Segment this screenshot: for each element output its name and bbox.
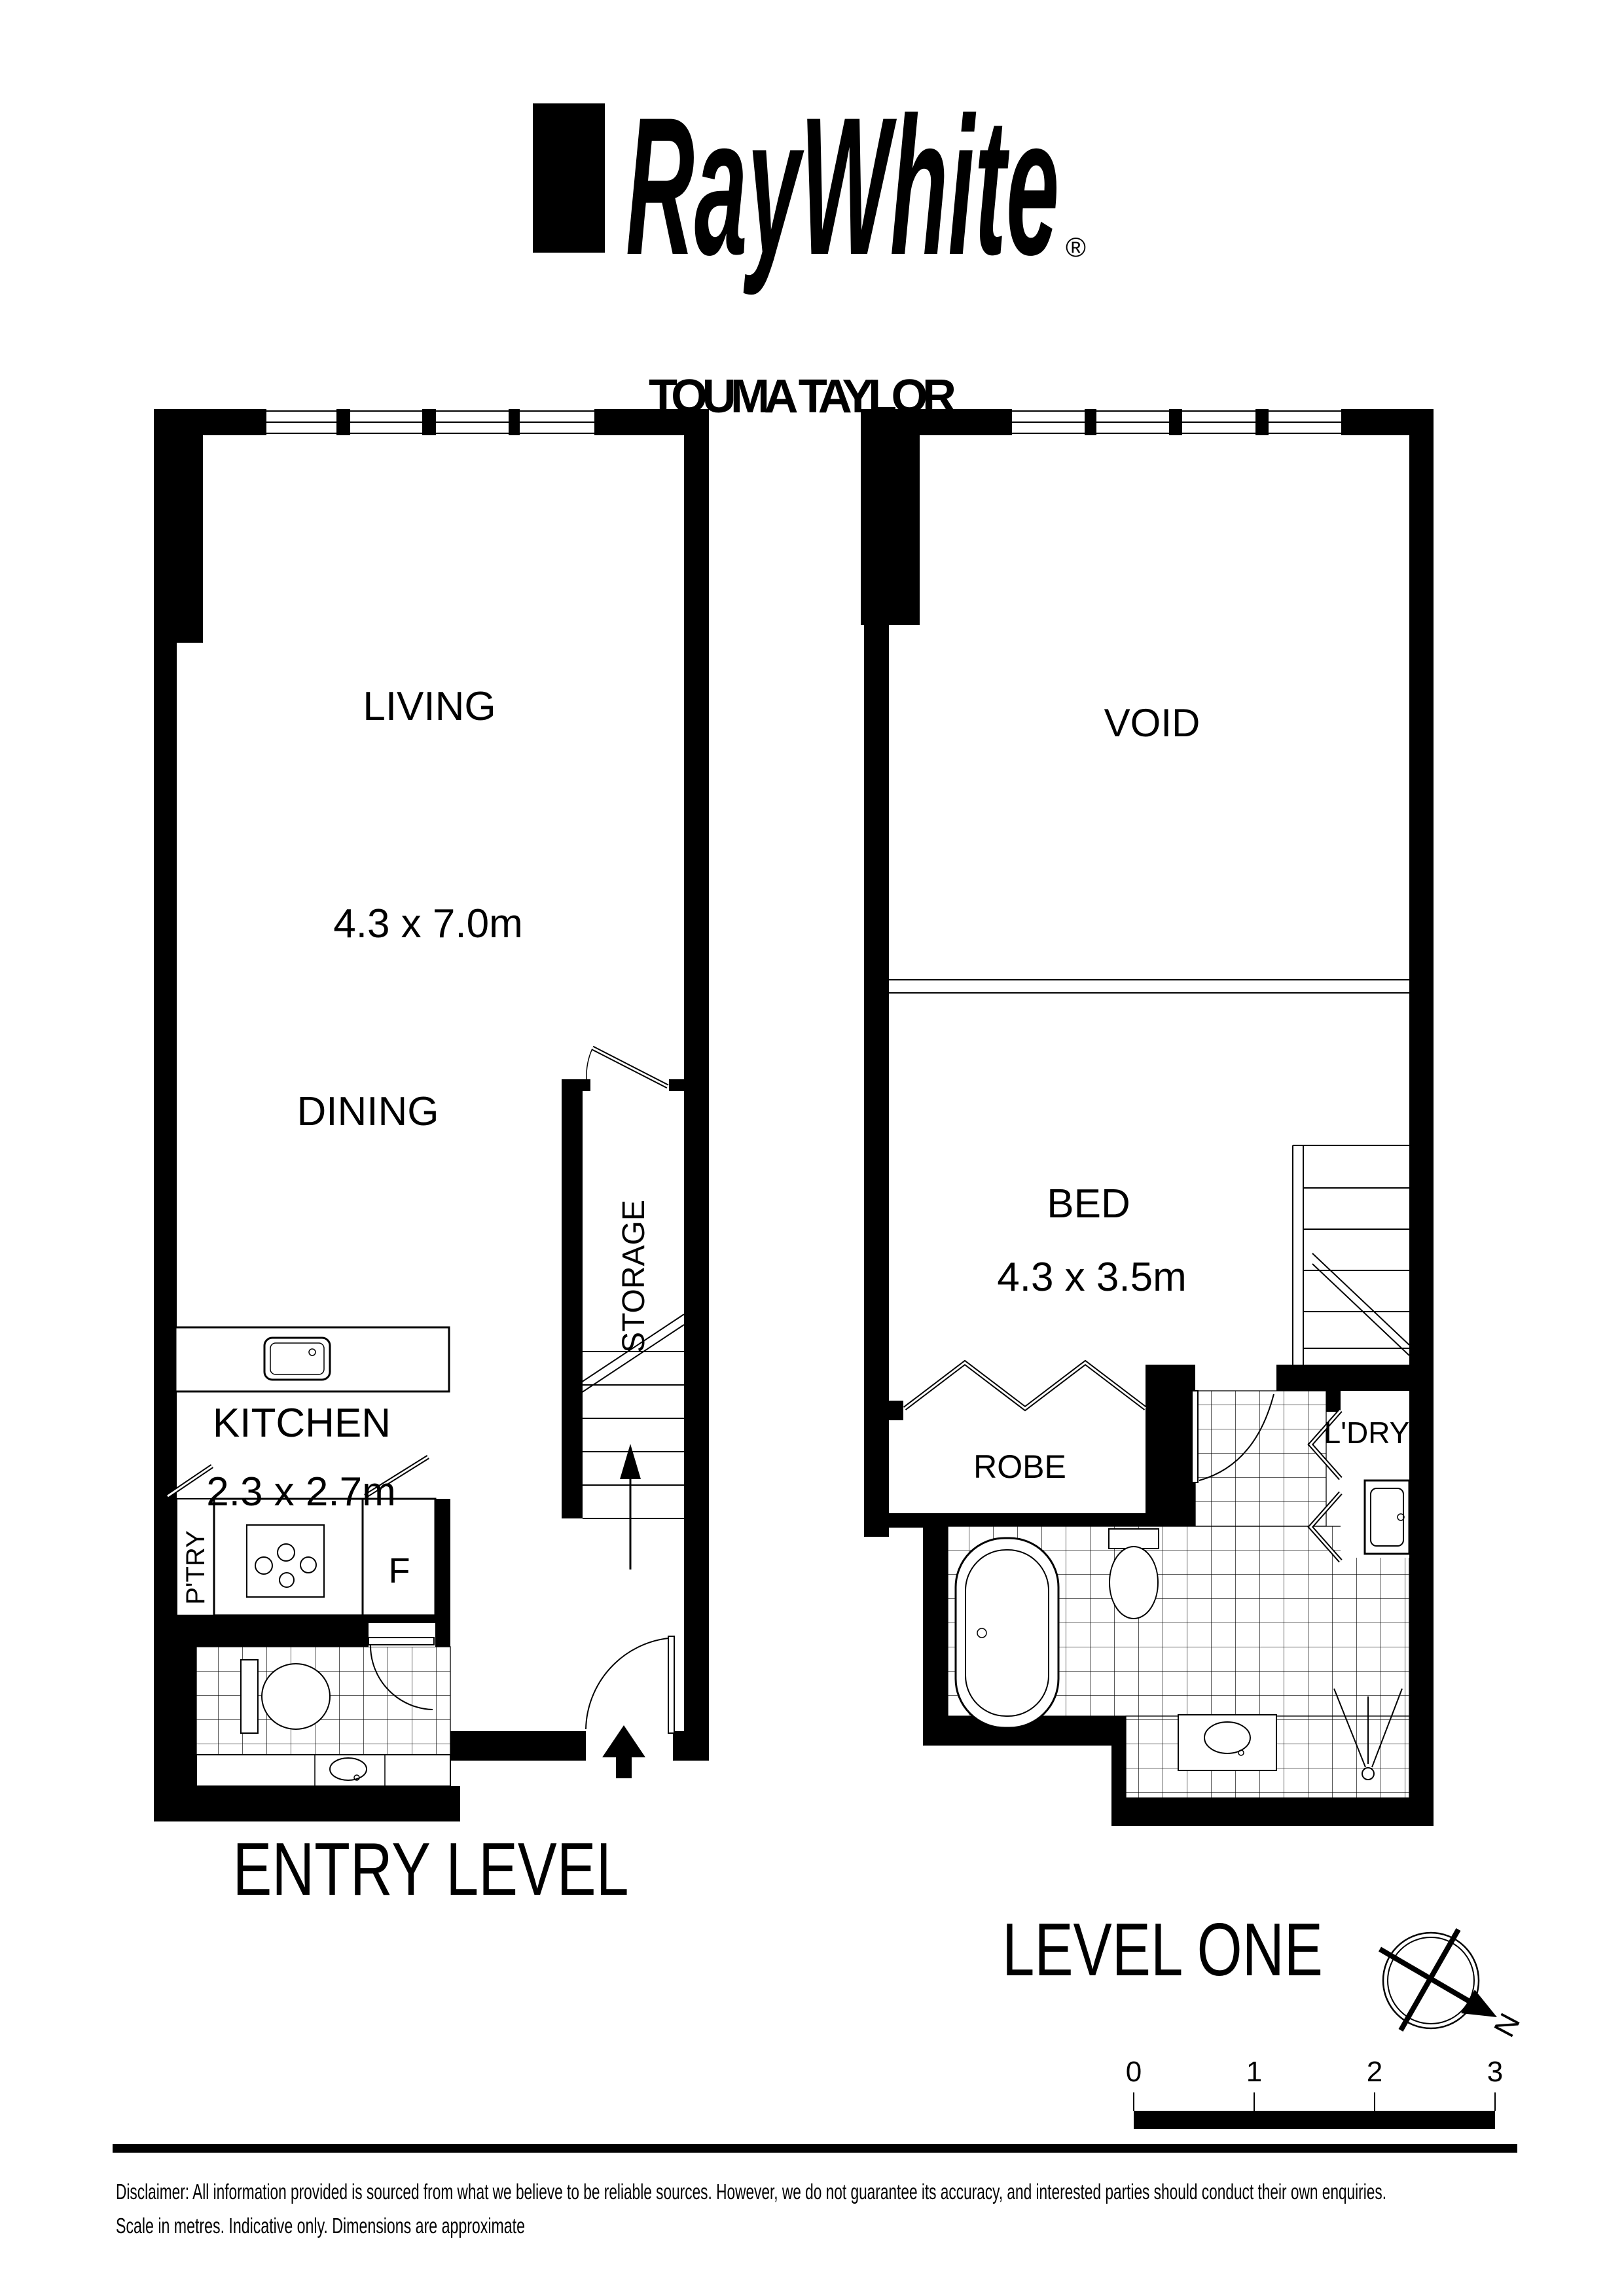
window-icon <box>1096 409 1169 435</box>
pantry-label: P'TRY <box>181 1530 210 1605</box>
brand-logo: RayWhite ® TOUMA TAYLOR <box>533 76 1086 423</box>
window-icon <box>350 409 422 435</box>
level-one-title: LEVEL ONE <box>1002 1909 1323 1992</box>
floorplan-level-one: VOID BED 4.3 x 3.5m ROBE L'DRY LEVEL ONE <box>861 409 1434 1992</box>
staircase <box>1293 1145 1409 1365</box>
kitchen-label: KITCHEN <box>213 1401 391 1446</box>
void-edge-line <box>889 980 1409 993</box>
window-icon <box>436 409 509 435</box>
entry-arrow-icon <box>602 1725 645 1778</box>
sink-icon <box>264 1338 330 1380</box>
living-dimensions: 4.3 x 7.0m <box>333 901 522 946</box>
cooktop-icon <box>247 1525 324 1597</box>
disclaimer-line2: Scale in metres. Indicative only. Dimens… <box>116 2214 525 2238</box>
vanity-basin-icon <box>1178 1715 1276 1770</box>
kitchen-dimensions: 2.3 x 2.7m <box>206 1469 395 1515</box>
wc-vanity-basin-icon <box>196 1755 450 1786</box>
toilet-icon <box>1109 1529 1159 1619</box>
bed-label: BED <box>1047 1181 1130 1227</box>
scale-tick-label: 3 <box>1487 2056 1503 2088</box>
dining-label: DINING <box>297 1089 439 1134</box>
scale-tick-label: 2 <box>1367 2056 1382 2088</box>
living-label: LIVING <box>363 684 496 729</box>
scale-tick-label: 1 <box>1246 2056 1262 2088</box>
robe-label: ROBE <box>973 1448 1066 1485</box>
window-icon <box>1182 409 1255 435</box>
toilet-icon <box>241 1660 330 1733</box>
tiled-floor <box>1195 1391 1326 1526</box>
wc-room <box>196 1623 450 1786</box>
window-icon <box>1012 409 1085 435</box>
void-label: VOID <box>1104 701 1200 745</box>
storage-door-icon <box>586 1048 668 1086</box>
laundry-label: L'DRY <box>1324 1416 1410 1450</box>
registered-mark: ® <box>1066 232 1086 262</box>
logo-square-icon <box>533 103 605 253</box>
bed-dimensions: 4.3 x 3.5m <box>997 1255 1186 1300</box>
storage-label: STORAGE <box>617 1200 651 1353</box>
logo-text: RayWhite <box>626 76 1059 297</box>
bathtub-icon <box>956 1538 1058 1728</box>
disclaimer-line1: Disclaimer: All information provided is … <box>116 2179 1386 2204</box>
scale-bar-rule <box>1134 2111 1495 2129</box>
scale-bar: 0 1 2 3 <box>1126 2056 1503 2129</box>
fridge-label: F <box>389 1551 410 1590</box>
robe-bifold-doors-icon <box>905 1363 1146 1408</box>
window-icon <box>1269 409 1341 435</box>
entry-door-icon <box>586 1636 674 1733</box>
washing-machine-icon <box>1365 1480 1409 1554</box>
window-icon <box>520 409 594 435</box>
floorplan-entry-level: LIVING 4.3 x 7.0m DINING KITCHEN 2.3 x 2… <box>154 409 709 1911</box>
scale-tick-label: 0 <box>1126 2056 1142 2088</box>
stairs-up-arrow-icon <box>620 1444 641 1570</box>
window-icon <box>266 409 336 435</box>
entry-level-title: ENTRY LEVEL <box>233 1828 629 1911</box>
kitchen-island <box>175 1327 449 1391</box>
footer-divider <box>113 2144 1517 2153</box>
floorplan-page: RayWhite ® TOUMA TAYLOR <box>0 0 1624 2296</box>
compass-icon: N <box>1380 1929 1526 2042</box>
